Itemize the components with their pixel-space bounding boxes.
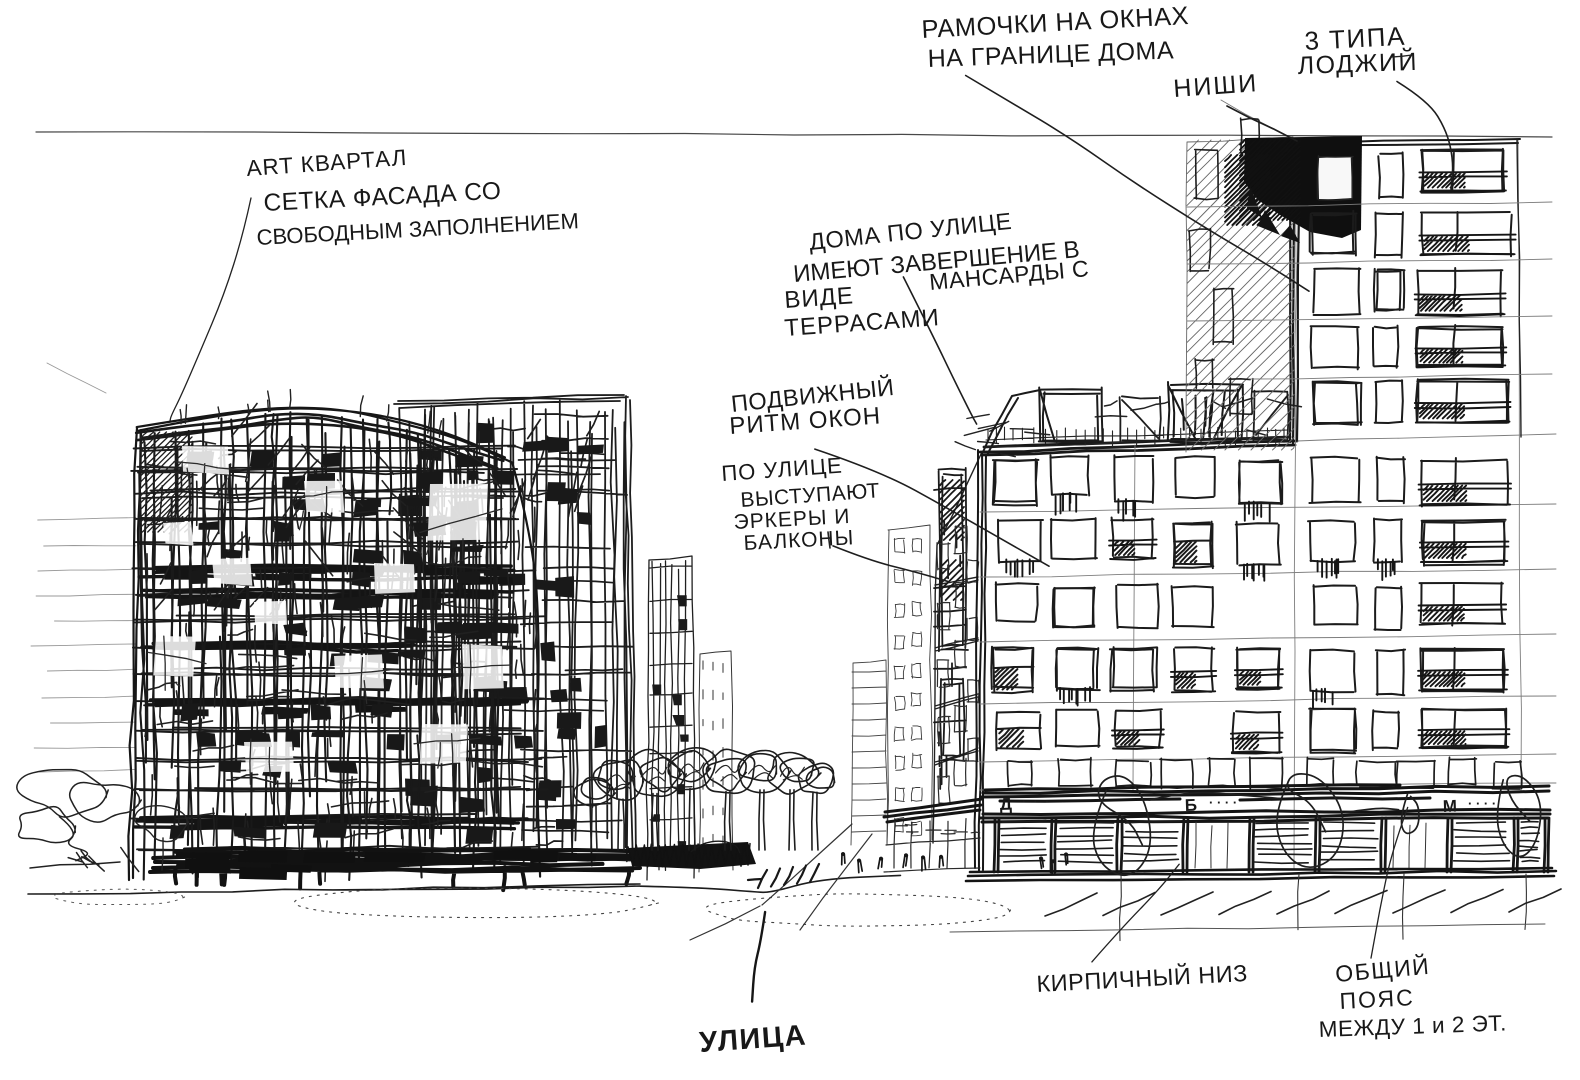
svg-text:НИШИ: НИШИ bbox=[1172, 69, 1259, 103]
svg-text:Б: Б bbox=[1184, 796, 1197, 815]
svg-text:ПОЯС: ПОЯС bbox=[1339, 984, 1415, 1014]
svg-text:· · · ·: · · · · bbox=[1468, 796, 1496, 811]
svg-text:· · · ·: · · · · bbox=[1209, 795, 1237, 810]
svg-text:М: М bbox=[1442, 797, 1457, 816]
svg-text:· · ·: · · · bbox=[1022, 794, 1049, 809]
svg-text:Д: Д bbox=[999, 795, 1012, 814]
svg-text:ВИДЕ: ВИДЕ bbox=[784, 282, 855, 314]
svg-text:ЛОДЖИЙ: ЛОДЖИЙ bbox=[1297, 46, 1418, 80]
